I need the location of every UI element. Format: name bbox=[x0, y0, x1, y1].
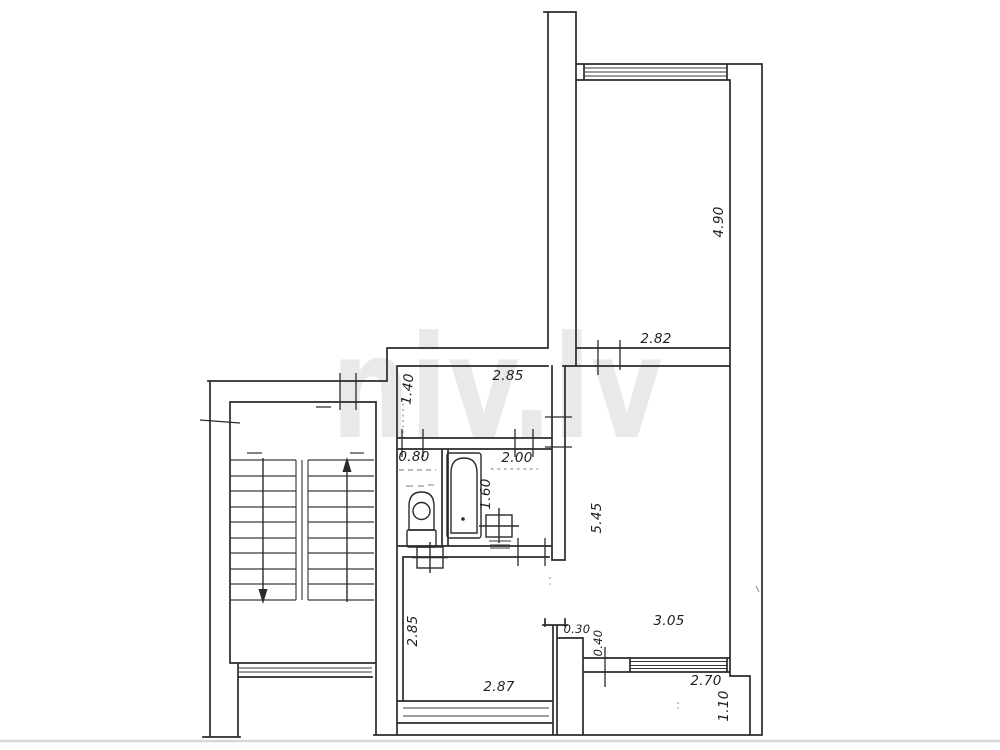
dim-label-160: 1.60 bbox=[478, 478, 494, 509]
dim-label-030: 0.30 bbox=[564, 622, 591, 636]
staircase bbox=[230, 453, 374, 604]
dim-label-140: 1.40 bbox=[398, 373, 417, 406]
stair-arrow-down-icon bbox=[259, 458, 268, 604]
toilet-icon bbox=[407, 492, 436, 547]
dim-label-200: 2.00 bbox=[501, 450, 532, 466]
dim-label-490: 4.90 bbox=[711, 206, 727, 237]
dim-label-282: 2.82 bbox=[640, 331, 671, 347]
floor-plan-drawing: niv.lv bbox=[0, 0, 1000, 750]
dim-label-287: 2.87 bbox=[483, 679, 514, 695]
dim-label-040: 0.40 bbox=[591, 630, 605, 657]
stair-arrow-up-icon bbox=[343, 457, 352, 602]
dim-label-285-corridor: 2.85 bbox=[492, 368, 523, 384]
washbasin-icon bbox=[479, 508, 519, 548]
stove-icon bbox=[412, 542, 448, 573]
dim-label-545: 5.45 bbox=[589, 502, 605, 533]
dim-label-110: 1.10 bbox=[716, 690, 732, 721]
dim-label-080: 0.80 bbox=[398, 449, 429, 465]
dim-label-285-kitchen: 2.85 bbox=[405, 615, 421, 646]
floor-plan-scan: niv.lv bbox=[0, 0, 1000, 750]
dim-label-270: 2.70 bbox=[690, 673, 721, 689]
dim-label-305: 3.05 bbox=[653, 613, 684, 629]
watermark-text: niv.lv bbox=[331, 306, 663, 471]
